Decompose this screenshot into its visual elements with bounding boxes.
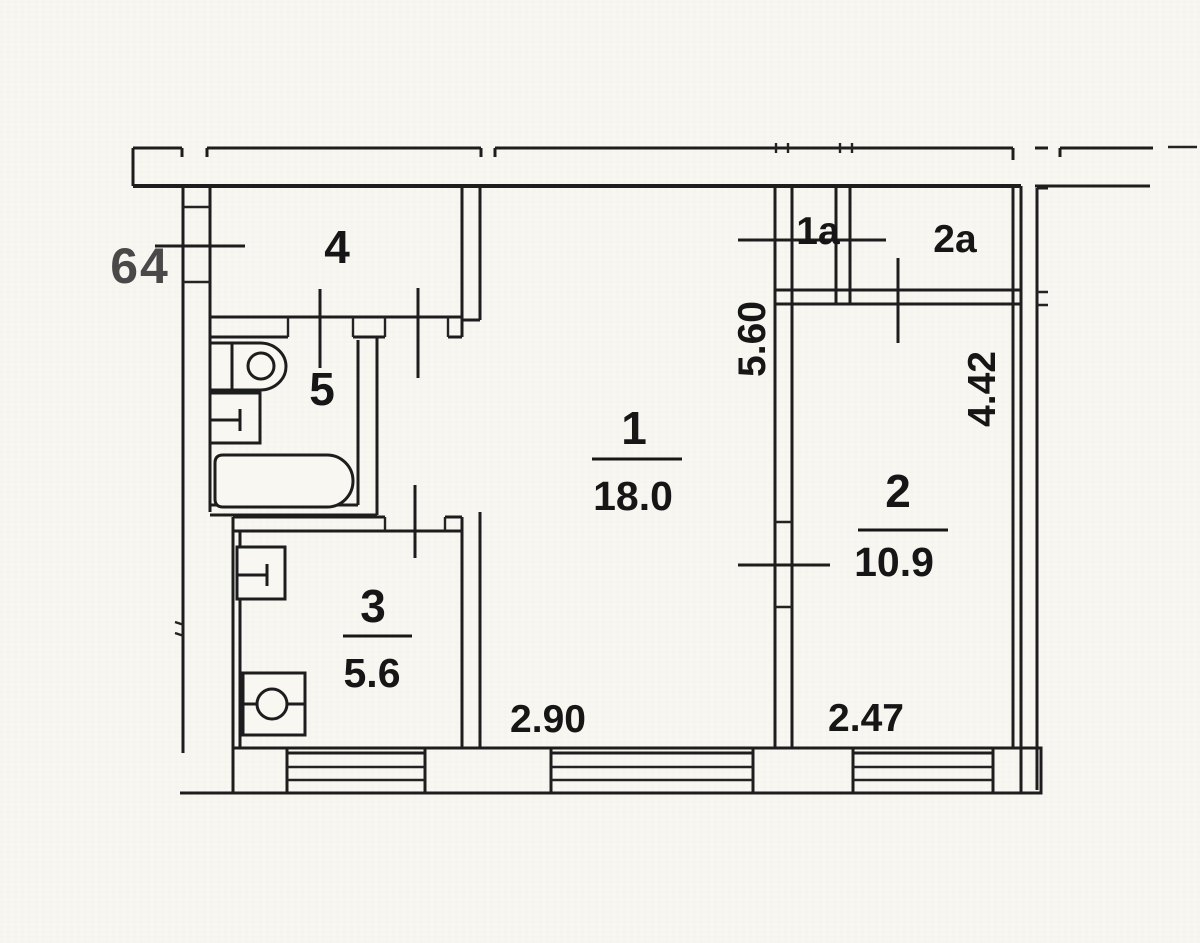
exterior-bottom-wall: [180, 748, 1041, 793]
closet-1a-label: 1a: [796, 210, 840, 253]
dimension-left-section-height: 5.60: [731, 301, 774, 377]
exterior-left-wall: [175, 186, 210, 753]
exterior-right-wall: [1013, 186, 1048, 793]
room-2-area: 10.9: [854, 539, 934, 585]
dimension-room1-window: 2.90: [510, 698, 586, 741]
room-4-number: 4: [324, 221, 350, 273]
wall-pier: [233, 748, 287, 793]
dimension-room2-window: 2.47: [828, 697, 904, 740]
toilet-icon: [210, 343, 286, 390]
room-1-area: 18.0: [593, 473, 673, 519]
dimension-room2-height: 4.42: [961, 351, 1004, 427]
wall-pier: [425, 748, 551, 793]
room-3-number: 3: [360, 580, 386, 632]
room1-room2-partition: [775, 186, 792, 748]
room1-window: [551, 753, 753, 780]
stove-icon: [243, 673, 305, 735]
wall-pier: [753, 748, 853, 793]
room-5-number: 5: [309, 363, 335, 415]
bathtub-icon: [215, 455, 353, 507]
room2-window: [853, 753, 993, 780]
exterior-top-wall: [133, 143, 1197, 186]
apartment-number-label: 64: [110, 238, 170, 294]
room-2-number: 2: [885, 465, 911, 517]
wall-pier: [993, 748, 1041, 793]
room-3-area: 5.6: [344, 650, 401, 696]
scanned-floor-plan-sheet: 64 4 5 3 5.6 1 18.0 2 10.9 1a 2a 2.90 2.…: [0, 0, 1200, 943]
kitchen-sink-icon: [237, 547, 285, 599]
kitchen-window: [287, 753, 425, 780]
bathroom-sink-icon: [210, 393, 260, 443]
floor-plan: 64 4 5 3 5.6 1 18.0 2 10.9 1a 2a 2.90 2.…: [0, 0, 1200, 943]
closet-2a-label: 2a: [933, 218, 977, 261]
room-1-number: 1: [621, 402, 647, 454]
